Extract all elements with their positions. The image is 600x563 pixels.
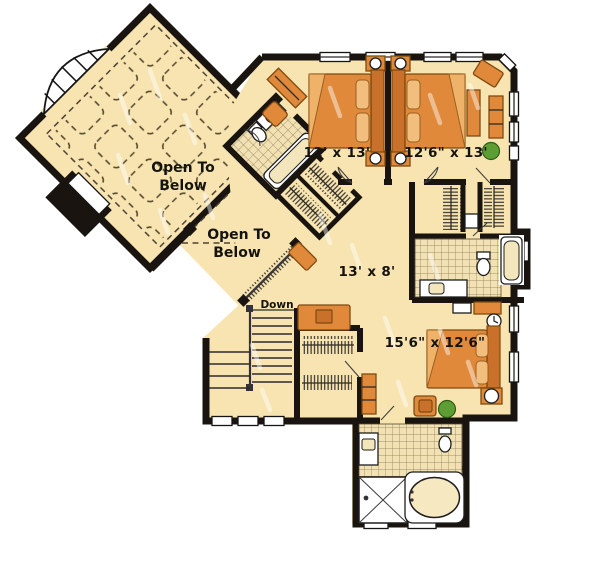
open-to-below-lower-label-2: Below: [213, 245, 261, 261]
open-to-below-upper-label-2: Below: [159, 178, 207, 194]
lamp-icon: [370, 58, 381, 69]
master-bathroom: [359, 424, 464, 523]
plant-icon: [439, 401, 456, 418]
pillow: [407, 80, 420, 109]
stairs-down-label: Down: [260, 299, 293, 311]
shelf: [465, 214, 478, 228]
lamp-icon: [395, 58, 406, 69]
open-to-below-upper-label-1: Open To: [151, 160, 215, 176]
sink-icon: [362, 439, 375, 450]
toilet-icon: [439, 436, 451, 452]
clock-icon: [485, 389, 499, 403]
open-to-below-lower-label-1: Open To: [207, 227, 271, 243]
bathtub-oval: [410, 478, 460, 518]
master-dimension-label: 15'6" x 12'6": [385, 335, 486, 351]
bed-headboard: [371, 70, 384, 152]
desk: [474, 302, 501, 314]
showerhead-icon: [364, 496, 369, 501]
pillow: [356, 113, 369, 142]
hallway-dimension-label: 13' x 8': [339, 264, 396, 280]
dresser: [489, 96, 503, 138]
bed-headboard: [392, 70, 405, 152]
lamp-icon: [370, 153, 381, 164]
bedroom2-dimension-label: 12'6" x 13': [404, 145, 488, 161]
pillow: [476, 361, 488, 384]
bed-headboard: [487, 326, 500, 388]
dresser: [362, 374, 376, 414]
sink-icon: [429, 283, 444, 294]
bedroom1-dimension-label: 12' x 13': [304, 145, 371, 161]
nightstand: [453, 303, 471, 313]
floor-plan-drawing: Open To Below Open To Below 12' x 13' 12…: [0, 0, 600, 563]
pillow: [407, 113, 420, 142]
toilet-tank: [439, 428, 451, 434]
pillow: [356, 80, 369, 109]
floor-plan: Open To Below Open To Below 12' x 13' 12…: [0, 0, 600, 563]
toilet-icon: [477, 259, 490, 276]
